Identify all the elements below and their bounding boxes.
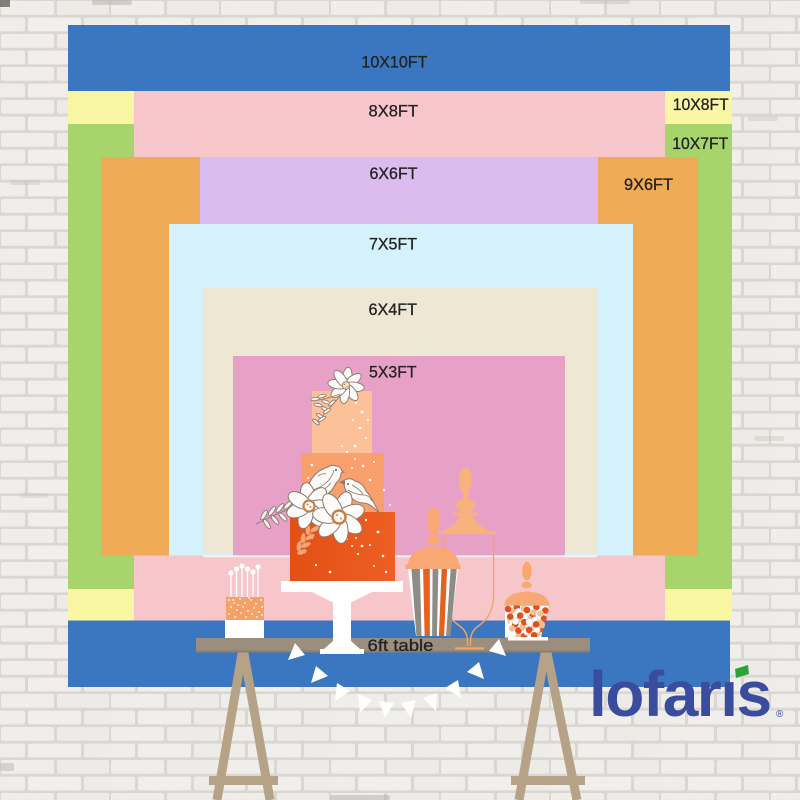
svg-text:10X7FT: 10X7FT bbox=[672, 134, 728, 153]
svg-text:5X3FT: 5X3FT bbox=[369, 363, 417, 382]
svg-text:6ft table: 6ft table bbox=[368, 636, 434, 655]
svg-text:8X8FT: 8X8FT bbox=[369, 102, 419, 121]
svg-text:7X5FT: 7X5FT bbox=[369, 235, 417, 254]
svg-text:6X6FT: 6X6FT bbox=[370, 164, 418, 183]
svg-text:10X8FT: 10X8FT bbox=[673, 95, 729, 114]
svg-text:10X10FT: 10X10FT bbox=[361, 53, 427, 72]
svg-text:®: ® bbox=[776, 709, 784, 720]
svg-text:9X6FT: 9X6FT bbox=[624, 175, 673, 194]
svg-text:6X4FT: 6X4FT bbox=[369, 300, 418, 319]
